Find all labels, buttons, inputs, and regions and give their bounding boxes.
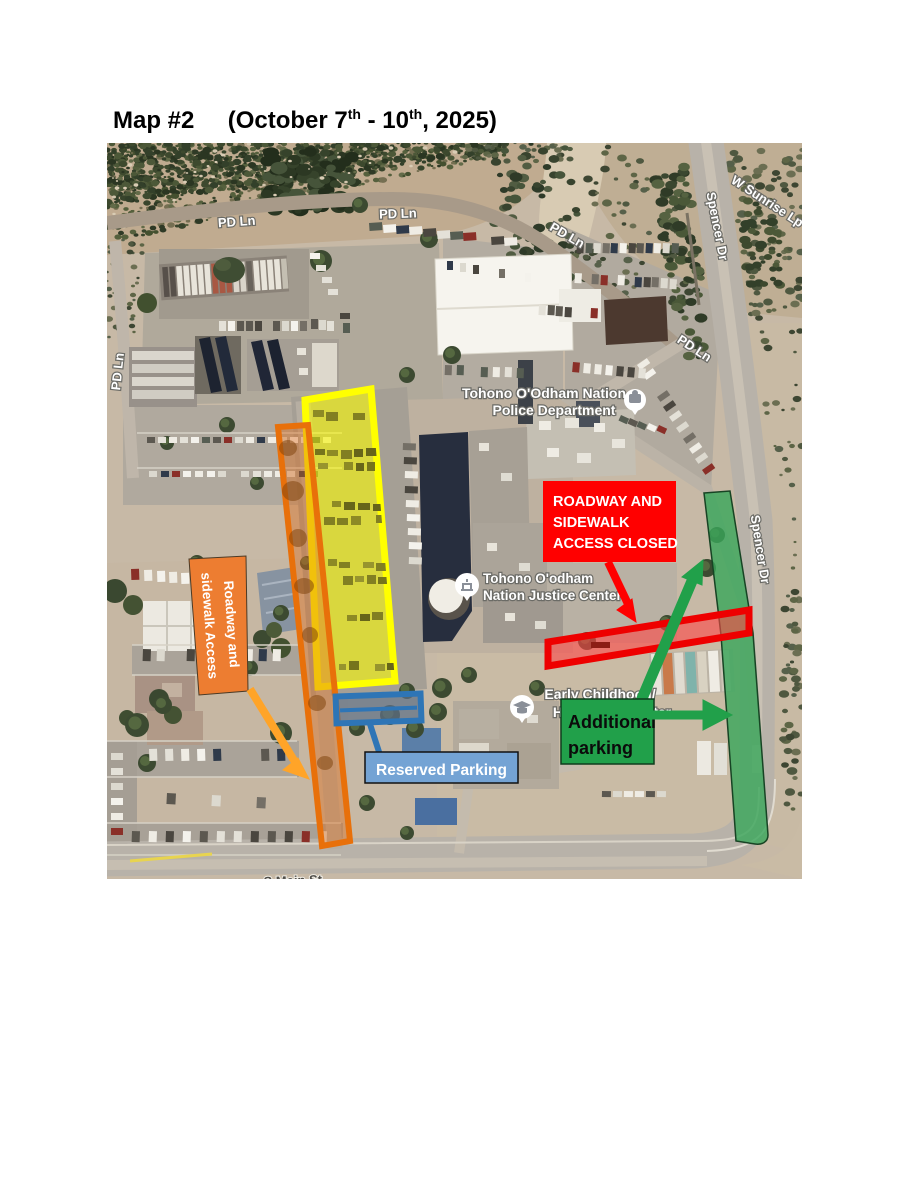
svg-text:Reserved Parking: Reserved Parking [376,762,507,779]
svg-text:Additional: Additional [568,712,656,732]
svg-text:Nation Justice Center: Nation Justice Center [483,588,623,603]
svg-text:PD Ln: PD Ln [379,205,417,221]
svg-text:Tohono O'odham: Tohono O'odham [483,571,593,586]
svg-text:S Main St: S Main St [263,872,323,879]
svg-text:Tohono O'Odham Nation: Tohono O'Odham Nation [462,385,626,401]
svg-text:parking: parking [568,738,633,758]
svg-text:PD Ln: PD Ln [217,213,256,231]
svg-text:ROADWAY AND: ROADWAY AND [553,494,662,510]
svg-text:SIDEWALK: SIDEWALK [553,515,630,531]
svg-text:ACCESS CLOSED: ACCESS CLOSED [553,536,678,552]
svg-text:Police Department: Police Department [493,402,616,418]
